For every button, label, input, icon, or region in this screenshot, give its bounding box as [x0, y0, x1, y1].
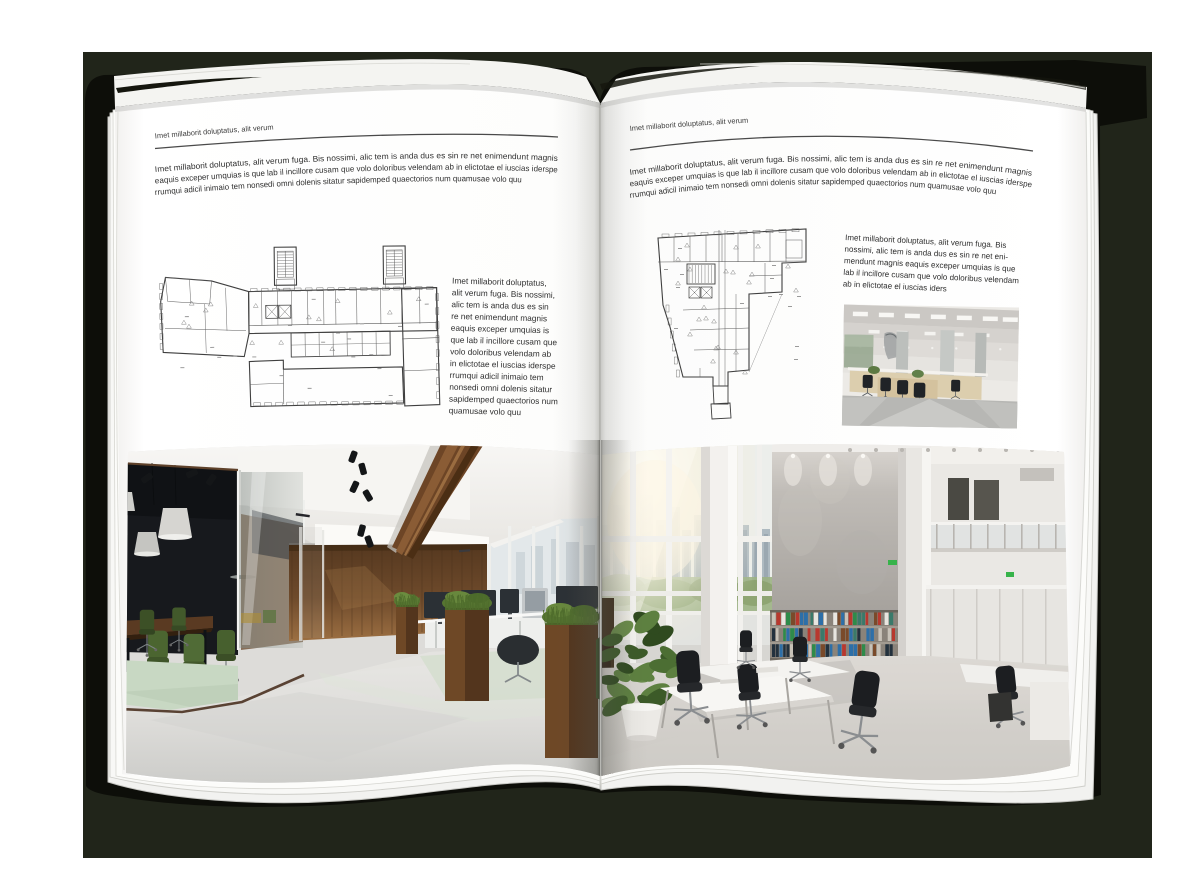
svg-text:quamusae volo quu: quamusae volo quu	[449, 405, 522, 417]
